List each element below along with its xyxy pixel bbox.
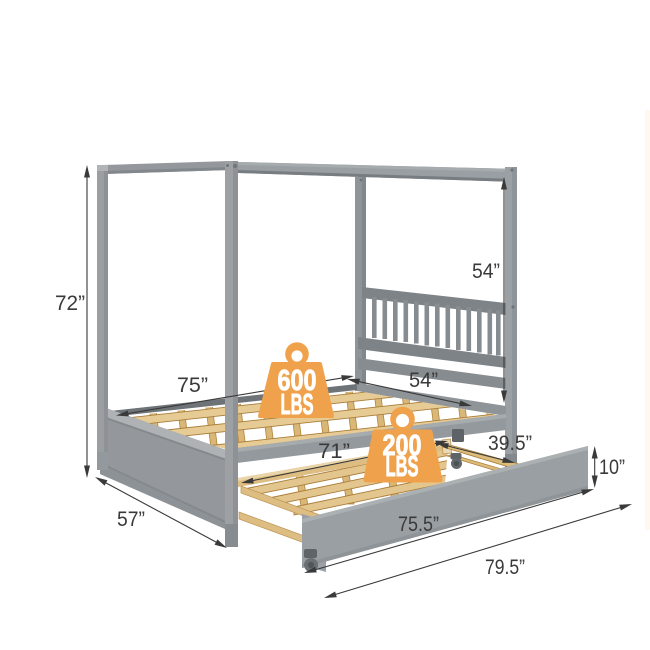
svg-text:10”: 10” <box>599 455 625 479</box>
svg-text:39.5”: 39.5” <box>488 431 532 455</box>
svg-text:LBS: LBS <box>281 389 314 421</box>
svg-text:54”: 54” <box>472 259 500 283</box>
svg-text:57”: 57” <box>117 507 145 531</box>
svg-text:79.5”: 79.5” <box>485 555 525 579</box>
svg-text:75”: 75” <box>177 373 208 397</box>
svg-text:54”: 54” <box>409 368 438 392</box>
svg-text:75.5”: 75.5” <box>398 512 439 536</box>
svg-text:71”: 71” <box>318 439 350 463</box>
svg-text:72”: 72” <box>55 291 85 315</box>
svg-text:LBS: LBS <box>386 451 419 483</box>
